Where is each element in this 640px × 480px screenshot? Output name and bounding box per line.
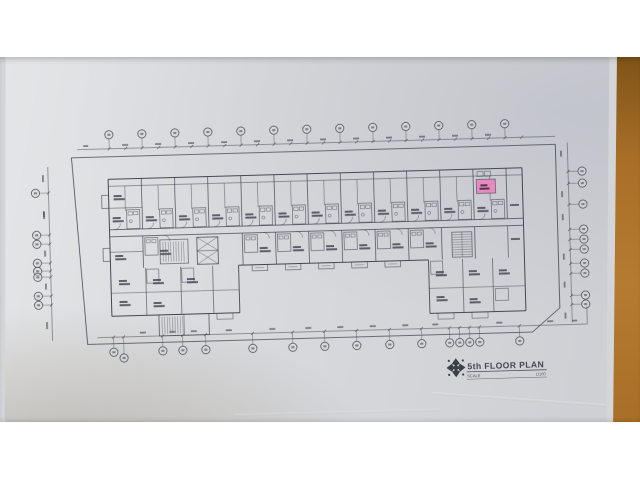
unit-label-smudge	[260, 247, 268, 249]
unit-label-smudge	[477, 210, 488, 212]
dimension-text-smudge	[496, 322, 502, 324]
unit-label-smudge	[187, 281, 198, 283]
unit-label-smudge	[326, 245, 334, 247]
unit-label-smudge	[293, 249, 304, 251]
door-swing	[280, 219, 286, 225]
unit-label-smudge	[345, 211, 353, 213]
door-swing	[380, 216, 386, 222]
unit-label-smudge	[378, 210, 386, 212]
unit-label-smudge	[436, 271, 444, 273]
unit-label-smudge	[499, 272, 510, 274]
dimension-text-smudge	[305, 327, 311, 329]
unit-label-smudge	[469, 273, 480, 275]
unit-label-smudge	[411, 212, 422, 214]
plan-linework	[30, 117, 591, 364]
dimension-text-smudge	[547, 320, 553, 322]
letterbox-bottom	[0, 422, 640, 480]
unit-label-smudge	[114, 198, 125, 200]
door-swing	[479, 213, 485, 219]
unit-label-smudge	[359, 247, 370, 249]
dimension-text-smudge	[353, 138, 359, 140]
dimension-text-smudge	[155, 143, 161, 145]
unit-label-smudge	[326, 248, 337, 250]
unit-label-smudge	[260, 250, 271, 252]
unit-label-smudge	[426, 242, 434, 244]
unit-label-smudge	[499, 269, 507, 271]
door-swing	[247, 220, 253, 226]
unit-label-smudge	[444, 208, 452, 210]
door-swing	[429, 228, 435, 234]
dimension-text-smudge	[563, 254, 565, 260]
unit-label-smudge	[378, 213, 389, 215]
unit-label-smudge	[436, 274, 447, 276]
dimension-text-smudge	[561, 191, 563, 197]
door-swing	[346, 217, 352, 223]
unit-label-smudge	[119, 301, 127, 303]
unit-label-smudge	[312, 211, 320, 213]
unit-label-smudge	[153, 279, 161, 281]
dimension-text-smudge	[254, 140, 260, 142]
unit-label-smudge	[153, 282, 164, 284]
letterbox-top	[0, 0, 640, 57]
dimension-text-smudge	[562, 214, 564, 220]
door-swing	[114, 224, 120, 230]
unit-label-smudge	[179, 215, 187, 217]
unit-label-smudge	[245, 213, 253, 215]
dimension-text-smudge	[386, 137, 392, 139]
title-block: 5th FLOOR PLAN SCALE 1/100	[446, 356, 547, 380]
dimension-text-smudge	[564, 282, 566, 288]
unit-label-smudge	[279, 215, 290, 217]
door-swing	[363, 230, 369, 236]
floor-plan-drawing: 5th FLOOR PLAN SCALE 1/100	[0, 0, 640, 480]
unit-label-smudge	[345, 214, 356, 216]
door-swing	[396, 229, 402, 235]
dimension-text-smudge	[191, 330, 197, 332]
unit-label-smudge	[115, 255, 123, 257]
dimension-text-smudge	[564, 313, 566, 319]
unit-label-smudge	[119, 283, 130, 285]
dimension-text-smudge	[337, 326, 343, 328]
dimension-text-smudge	[370, 325, 376, 327]
door-swing	[164, 235, 170, 241]
dimension-text-smudge	[572, 320, 577, 322]
unit-label-smudge	[278, 212, 286, 214]
door-swing	[313, 218, 319, 224]
rosette-compass-icon	[446, 358, 466, 378]
unit-label-smudge	[179, 218, 190, 220]
door-swing	[330, 231, 336, 237]
scale-value: 1/100	[536, 371, 547, 376]
door-swing	[181, 222, 187, 228]
unit-label-smudge	[392, 246, 403, 248]
unit-label-smudge	[113, 220, 124, 222]
unit-label-smudge	[444, 211, 455, 213]
unit-label-smudge	[411, 209, 419, 211]
dimension-text-smudge	[452, 135, 458, 137]
dimension-text-smudge	[560, 151, 562, 157]
unit-label-smudge	[114, 195, 122, 197]
unit-label-smudge	[154, 302, 162, 304]
unit-label-smudge	[470, 301, 481, 303]
dimension-text-smudge	[42, 175, 44, 182]
dimension-text-smudge	[140, 332, 146, 334]
dimension-text-smudge	[226, 329, 232, 331]
door-swing	[296, 231, 302, 237]
dimension-text-smudge	[402, 324, 408, 326]
unit-label-smudge	[115, 258, 126, 260]
unit-label-smudge	[160, 250, 168, 252]
scale-label: SCALE	[467, 373, 481, 378]
unit-label-smudge	[426, 245, 437, 247]
dimension-text-smudge	[432, 323, 438, 325]
dimension-text-smudge	[45, 284, 47, 290]
dimension-text-smudge	[122, 144, 128, 146]
unit-label-smudge	[392, 243, 400, 245]
dimension-text-smudge	[485, 134, 491, 136]
unit-label-smudge	[212, 214, 220, 216]
door-swing	[214, 221, 220, 227]
dimension-text-smudge	[269, 328, 275, 330]
dimension-text-smudge	[188, 142, 194, 144]
unit-label-smudge	[312, 215, 323, 217]
unit-label-smudge	[146, 216, 154, 218]
dimension-text-smudge	[83, 145, 88, 147]
unit-label-smudge	[154, 305, 165, 307]
unit-label-smudge	[113, 217, 121, 219]
door-swing	[413, 215, 419, 221]
unit-label-smudge	[436, 296, 444, 298]
unit-label-smudge	[293, 246, 301, 248]
unit-label-smudge	[119, 280, 127, 282]
photographed-floor-plan: 5th FLOOR PLAN SCALE 1/100	[0, 0, 640, 480]
unit-label-smudge	[212, 217, 223, 219]
unit-label-smudge	[245, 216, 256, 218]
dimension-text-smudge	[221, 141, 227, 143]
door-swing	[147, 223, 153, 229]
dimension-text-smudge	[320, 138, 326, 140]
door-swing	[263, 232, 269, 238]
unit-label-smudge	[469, 270, 477, 272]
unit-label-smudge	[187, 278, 195, 280]
unit-label-smudge	[437, 299, 448, 301]
plan-title: 5th FLOOR PLAN	[467, 359, 544, 371]
unit-label-smudge	[146, 219, 157, 221]
dimension-text-smudge	[287, 139, 293, 141]
dimension-text-smudge	[46, 322, 48, 329]
dimension-text-smudge	[419, 136, 425, 138]
unit-label-smudge	[477, 207, 485, 209]
dimension-text-smudge	[44, 251, 46, 257]
unit-label-smudge	[359, 244, 367, 246]
dimension-text-smudge	[43, 212, 45, 219]
door-swing	[446, 214, 452, 220]
unit-label-smudge	[120, 304, 131, 306]
unit-label-smudge	[470, 298, 478, 300]
plan-rotation-group: 5th FLOOR PLAN SCALE 1/100	[30, 117, 592, 391]
